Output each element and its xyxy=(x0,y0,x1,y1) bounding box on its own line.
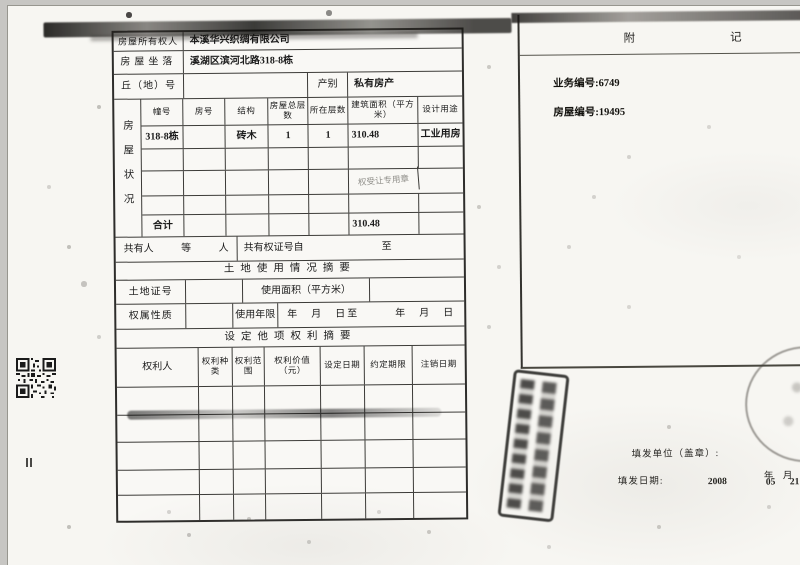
empty-cell xyxy=(322,468,366,492)
empty-cell xyxy=(269,170,309,194)
empty-cell xyxy=(226,171,269,195)
empty-cell xyxy=(349,147,419,169)
faint-transfer-stamp-text: 权受让专用章 xyxy=(348,167,420,196)
empty-cell xyxy=(184,171,226,195)
total-area-value: 310.48 xyxy=(349,213,419,235)
total-floors-value: 1 xyxy=(268,125,308,148)
floor-value: 1 xyxy=(308,125,348,148)
col-floor: 所在层数 xyxy=(308,98,348,124)
empty-cell xyxy=(309,213,349,235)
col-right-holder: 权利人 xyxy=(117,348,199,387)
housing-header-row: 幢号 房号 结构 房屋总层数 所在层数 建筑面积（平方米） 设计用途 xyxy=(141,96,462,126)
empty-cell xyxy=(321,440,365,467)
issue-month: 05 xyxy=(766,477,776,487)
location-value: 溪湖区滨河北路318-8栋 xyxy=(184,48,462,73)
empty-cell xyxy=(117,442,199,470)
building-no-value: 318-8栋 xyxy=(141,126,183,149)
co-owner-left: 共有人 等 人 xyxy=(116,237,238,262)
co-owner-ren: 人 xyxy=(219,243,229,255)
issue-date-label: 填发日期: xyxy=(618,473,664,487)
empty-cell xyxy=(419,147,463,169)
empty-cell xyxy=(266,469,322,494)
empty-cell xyxy=(365,440,413,467)
ownership-row: 权属性质 使用年限 年 月 日至 年 月 日 xyxy=(116,301,464,329)
land-cert-label: 土地证号 xyxy=(116,280,186,304)
housing-rows: 幢号 房号 结构 房屋总层数 所在层数 建筑面积（平方米） 设计用途 318-8… xyxy=(141,96,463,236)
use-area-label: 使用面积（平方米） xyxy=(243,278,370,302)
empty-cell xyxy=(269,148,309,170)
housing-vertical-strip: 房屋状况 xyxy=(114,100,142,237)
scanned-document-paper: 房屋所有权人 本溪华兴织绸有限公司 房屋坐落 溪湖区滨河北路318-8栋 丘（地… xyxy=(7,5,800,565)
co-owner-label: 共有人 xyxy=(124,244,154,256)
qr-code xyxy=(16,358,56,398)
issue-day: 21 xyxy=(790,477,800,487)
empty-cell xyxy=(266,494,322,520)
empty-cell xyxy=(142,172,184,196)
col-right-value: 权利价值（元） xyxy=(265,347,321,386)
ownership-label: 权属性质 xyxy=(116,304,186,329)
empty-cell xyxy=(186,280,243,304)
co-owner-deng: 等 xyxy=(181,243,191,255)
empty-cell xyxy=(184,149,226,171)
scan-noise-specks xyxy=(8,6,10,8)
empty-cell xyxy=(419,193,463,212)
empty-cell xyxy=(265,441,321,469)
house-number: 房屋编号:19495 xyxy=(553,102,800,119)
land-summary-title: 土地使用情况摘要 xyxy=(116,259,464,279)
col-building-no: 幢号 xyxy=(141,99,183,125)
structure-value: 砖木 xyxy=(225,125,268,148)
empty-cell xyxy=(370,277,464,301)
empty-cell xyxy=(414,492,466,517)
col-use: 设计用途 xyxy=(418,96,462,122)
annex-title: 附记 xyxy=(624,28,800,46)
empty-cell xyxy=(234,494,266,519)
empty-cell xyxy=(366,493,414,518)
plot-row: 丘（地）号 产别 私有房产 xyxy=(114,71,462,99)
empty-cell xyxy=(184,215,226,237)
empty-cell xyxy=(142,149,184,171)
empty-cell xyxy=(269,214,309,236)
plot-label: 丘（地）号 xyxy=(114,74,184,99)
col-room-no: 房号 xyxy=(183,99,225,125)
empty-cell xyxy=(419,212,463,234)
col-cancel-date: 注销日期 xyxy=(413,345,465,383)
col-structure: 结构 xyxy=(225,98,268,124)
annex-divider xyxy=(520,52,800,56)
use-value: 工业用房 xyxy=(418,123,462,146)
housing-vertical-label: 房屋状况 xyxy=(120,119,136,217)
issue-date-row: 填发日期: 2008 年 月 日 05 21 xyxy=(618,467,800,493)
empty-cell xyxy=(309,170,349,194)
total-label: 合计 xyxy=(142,215,184,237)
co-owner-row: 共有人 等 人 共有权证号自 至 xyxy=(116,234,464,262)
empty-cell xyxy=(200,470,234,494)
empty-cell xyxy=(366,468,414,492)
rights-header-row: 权利人 权利种类 权利范围 权利价值（元） 设定日期 约定期限 注销日期 xyxy=(117,345,465,387)
use-term-dates: 年 月 日至 年 月 日 xyxy=(278,301,464,327)
rights-empty-row xyxy=(117,439,465,470)
margin-tick-marks xyxy=(26,458,36,468)
land-cert-row: 土地证号 使用面积（平方米） xyxy=(116,277,464,304)
housing-empty-row: 权受让专用章 xyxy=(142,169,463,196)
rights-empty-row xyxy=(118,492,466,520)
empty-cell xyxy=(118,495,200,521)
category-label: 产别 xyxy=(308,73,348,97)
category-value: 私有房产 xyxy=(348,71,462,96)
empty-cell xyxy=(118,470,200,495)
housing-data-row: 318-8栋 砖木 1 1 310.48 工业用房 xyxy=(141,123,462,149)
illegible-rect-stamp xyxy=(497,369,569,522)
use-term-label: 使用年限 xyxy=(233,303,278,327)
col-right-scope: 权利范围 xyxy=(233,347,265,385)
empty-cell xyxy=(200,495,234,520)
empty-cell xyxy=(413,439,465,466)
empty-cell xyxy=(142,196,184,215)
empty-cell xyxy=(419,169,463,193)
room-no-value xyxy=(183,126,225,149)
col-right-type: 权利种类 xyxy=(199,348,233,386)
empty-cell xyxy=(199,442,233,469)
location-row: 房屋坐落 溪湖区滨河北路318-8栋 xyxy=(114,48,462,74)
business-number: 业务编号:6749 xyxy=(553,73,800,90)
empty-cell xyxy=(349,193,419,212)
co-owner-cert: 共有权证号自 至 xyxy=(238,234,464,260)
annex-panel: 附记 业务编号:6749 房屋编号:19495 xyxy=(517,12,800,369)
issue-year: 2008 xyxy=(708,477,727,487)
housing-total-row: 合计 310.48 xyxy=(142,212,463,236)
empty-cell xyxy=(186,304,233,328)
empty-cell xyxy=(226,149,269,171)
empty-cell xyxy=(234,469,266,493)
area-value: 310.48 xyxy=(348,124,418,147)
empty-cell xyxy=(226,214,269,236)
empty-cell xyxy=(233,441,265,468)
empty-cell xyxy=(309,194,349,213)
col-agreed-term: 约定期限 xyxy=(365,346,413,384)
col-set-date: 设定日期 xyxy=(321,346,365,384)
col-area: 建筑面积（平方米） xyxy=(348,97,418,124)
plot-value-empty xyxy=(184,73,308,98)
co-cert-to: 至 xyxy=(382,241,392,253)
empty-cell xyxy=(269,194,309,213)
empty-cell xyxy=(226,195,269,214)
empty-cell xyxy=(184,195,226,214)
document-skew-wrapper: 房屋所有权人 本溪华兴织绸有限公司 房屋坐落 溪湖区滨河北路318-8栋 丘（地… xyxy=(7,5,800,565)
empty-cell xyxy=(322,493,366,518)
col-total-floors: 房屋总层数 xyxy=(268,98,308,124)
co-cert-label: 共有权证号自 xyxy=(244,242,304,254)
housing-block: 房屋状况 幢号 房号 结构 房屋总层数 所在层数 建筑面积（平方米） 设计用途 … xyxy=(114,96,463,237)
empty-cell xyxy=(309,148,349,170)
rights-empty-row xyxy=(118,467,466,495)
empty-cell xyxy=(414,467,466,491)
location-label: 房屋坐落 xyxy=(114,51,184,74)
rights-title: 设定他项权利摘要 xyxy=(116,326,464,347)
property-registration-table: 房屋所有权人 本溪华兴织绸有限公司 房屋坐落 溪湖区滨河北路318-8栋 丘（地… xyxy=(112,27,469,522)
